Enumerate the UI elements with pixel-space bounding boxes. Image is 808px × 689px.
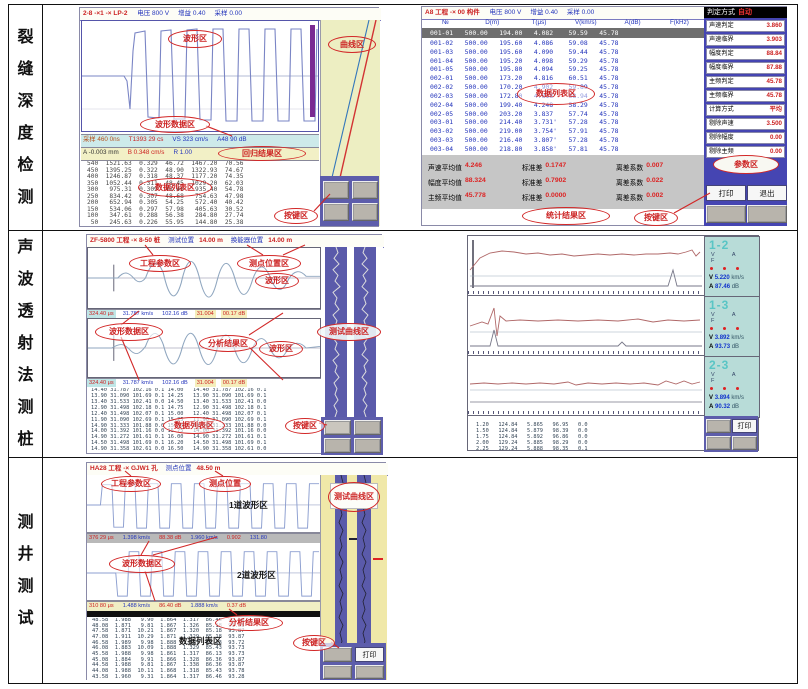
probe-position-label: 换能器位置 xyxy=(231,237,264,244)
profile-info-2: 1-3 V A F V 3.892 km/s A 93.73 dB xyxy=(704,296,760,358)
kv-item: 声速临界3.903 xyxy=(706,34,785,46)
button-panel: 打印 xyxy=(704,416,758,452)
list-item: 002-05 500.00 203.20 3.837 57.74 45.78 xyxy=(430,110,712,119)
list-item: 31.004 xyxy=(195,310,216,318)
list-item: 2.25 129.24 5.888 98.35 0.1 xyxy=(476,446,701,450)
vaf-labels: V A F xyxy=(705,252,759,264)
row-label-cell: 裂缝深度检测 xyxy=(9,5,43,230)
list-item: T1393 29 cs xyxy=(127,135,166,145)
list-item: 88.38 dB xyxy=(157,534,183,543)
status-dots xyxy=(705,386,759,392)
button-blank[interactable] xyxy=(747,205,787,223)
annotation-regression-result-area: 回归结果区 xyxy=(218,146,306,161)
list-item: 1.888 km/s xyxy=(188,602,219,611)
annotation-keys-area: 按键区 xyxy=(293,635,335,651)
annotation-keys-area: 按键区 xyxy=(285,418,325,434)
profile-id: 2-3 xyxy=(705,357,759,372)
list-item: 电压 800 V xyxy=(135,8,171,19)
list-item: 001-04 500.00 195.20 4.098 59.29 45.78 xyxy=(430,57,712,66)
kv-item: 离差系数0.007 xyxy=(616,162,710,172)
result-table: 1.20 124.84 5.865 96.95 0.01.50 124.84 5… xyxy=(476,422,701,450)
row-content-crack: 2-8 -×1 -× LP-2 电压 800 V增益 0.40采样 0.00 采… xyxy=(43,5,797,230)
list-item: F(kHz) xyxy=(656,19,703,26)
status-dot xyxy=(736,267,739,270)
list-item: № xyxy=(422,19,469,26)
annotation-point-position-area: 测点位置区 xyxy=(237,255,301,272)
list-item: 003-04 500.00 218.80 3.858' 57.81 45.78 xyxy=(430,145,712,154)
list-item: 电压 800 V xyxy=(488,7,524,18)
waveform-data-bar: 采样 460 0nsT1393 29 csVS 323 cm/sA48 90 d… xyxy=(81,134,319,148)
print-button[interactable]: 打印 xyxy=(706,185,746,201)
kv-item: 幅度判定88.84 xyxy=(706,48,785,60)
annotation-test-curve-area: 测试曲线区 xyxy=(317,323,381,341)
button-blank[interactable] xyxy=(354,420,381,435)
kv-item: 离差系数0.002 xyxy=(616,192,710,202)
square-waveform-chart xyxy=(87,543,320,601)
project-title: A8 工程 -× 00 构件 xyxy=(425,9,480,16)
button-blank[interactable] xyxy=(354,438,381,453)
list-item: 001-05 500.00 195.80 4.094 59.25 45.78 xyxy=(430,65,712,74)
list-item: B 0.348 cm/s xyxy=(126,148,167,158)
list-item: A(dB) xyxy=(609,19,656,26)
list-item: VS 323 cm/s xyxy=(170,135,210,145)
annotation-waveform-data-area: 波形数据区 xyxy=(95,323,163,341)
profile-panel-3 xyxy=(468,356,704,416)
list-item: 31.787 km/s xyxy=(121,310,155,318)
button-blank[interactable] xyxy=(324,420,351,435)
amplitude-value: A 93.73 dB xyxy=(705,344,759,350)
vaf-labels: V A F xyxy=(705,372,759,384)
profile-trace-2 xyxy=(468,296,702,352)
list-item: 003-02 500.00 219.00 3.754' 57.91 45.78 xyxy=(430,127,712,136)
list-item: 002-01 500.00 173.20 4.816 60.51 45.78 xyxy=(430,74,712,83)
list-item: 324.40 μs xyxy=(87,379,116,387)
row-label-cell: 声波透射法测桩 xyxy=(9,231,43,457)
row-label-crack-depth: 裂缝深度检测 xyxy=(16,22,34,214)
annotation-keys-area: 按键区 xyxy=(274,208,318,224)
profile-id: 1-2 xyxy=(705,237,759,252)
list-item: 增益 0.40 xyxy=(176,8,207,19)
table-row-selected[interactable]: 001-01 500.00 194.00 4.082 59.59 45.78 xyxy=(422,28,712,38)
button-blank[interactable] xyxy=(324,438,351,453)
velocity-value: V 5.220 km/s xyxy=(705,275,759,281)
amplitude-value: A 90.32 dB xyxy=(705,404,759,410)
profile-panel-2 xyxy=(468,296,704,356)
parameter-list: 声速判定3.860声速临界3.903幅度判定88.84幅度临界87.88主频判定… xyxy=(704,20,787,158)
kv-item: 标准差0.1747 xyxy=(522,162,616,172)
project-title: ZF-5800 工程 -× 8-50 桩 xyxy=(90,237,160,244)
table-row: 声波透射法测桩 ZF-5800 工程 -× 8-50 桩 测试位置14.00 m… xyxy=(9,231,797,458)
manual-page: 裂缝深度检测 2-8 -×1 -× LP-2 电压 800 V增益 0.40采样… xyxy=(0,0,808,689)
kv-item: 计算方式平均 xyxy=(706,104,785,116)
title-values: 电压 800 V增益 0.40采样 0.00 xyxy=(488,7,602,18)
annotation-point-position: 测点位置 xyxy=(199,476,251,492)
row-label-pile-testing: 声波透射法测桩 xyxy=(16,232,34,456)
status-dots xyxy=(705,266,759,272)
kv-item: 幅度临界87.88 xyxy=(706,62,785,74)
vaf-labels: V A F xyxy=(705,312,759,324)
table-row: 测井测试 HA28 工程 -× GJW1 孔 测点位置48.50 m 376 2… xyxy=(9,458,797,683)
label-data-list-area: 数据列表区 xyxy=(179,635,222,647)
project-title: HA28 工程 -× GJW1 孔 xyxy=(90,465,158,472)
status-dot xyxy=(710,267,713,270)
profile-id: 1-3 xyxy=(705,297,759,312)
kv-item: 主频临界45.78 xyxy=(706,90,785,102)
kv-item: 主频判定45.78 xyxy=(706,76,785,88)
label-channel1-waveform-area: 1道波形区 xyxy=(229,499,268,511)
list-item: 43.58 1.960 9.31 1.864 1.317 86.46 93.28 xyxy=(92,675,325,680)
button-blank[interactable] xyxy=(706,419,731,433)
parameter-sidebar: 判定方式自动 声速判定3.860声速临界3.903幅度判定88.84幅度临界87… xyxy=(704,7,787,226)
depth-ruler xyxy=(468,351,702,354)
button-blank[interactable] xyxy=(323,665,352,679)
kv-item: 声速平均值4.246 xyxy=(428,162,522,172)
row-content-pile: ZF-5800 工程 -× 8-50 桩 测试位置14.00 m 换能器位置14… xyxy=(43,231,797,457)
annotation-waveform-area: 波形区 xyxy=(255,273,299,289)
table-frame: 裂缝深度检测 2-8 -×1 -× LP-2 电压 800 V增益 0.40采样… xyxy=(8,4,798,684)
screen-crack-statistics: A8 工程 -× 00 构件 电压 800 V增益 0.40采样 0.00 №D… xyxy=(421,6,787,226)
screen-pile-main: ZF-5800 工程 -× 8-50 桩 测试位置14.00 m 换能器位置14… xyxy=(86,234,382,454)
list-item: 1.960 km/s xyxy=(188,534,219,543)
list-item: A -0.003 mm xyxy=(81,148,121,158)
table-header: №D(m)T(μs)V(km/s)A(dB)F(kHz) xyxy=(422,19,704,26)
depth-ruler xyxy=(468,291,702,294)
button-blank[interactable] xyxy=(323,203,349,221)
divider-band xyxy=(87,611,320,617)
screen-well-logging: HA28 工程 -× GJW1 孔 测点位置48.50 m 376 29 μs1… xyxy=(86,462,386,680)
annotation-curve-area: 曲线区 xyxy=(328,36,376,53)
title-values: 电压 800 V增益 0.40采样 0.00 xyxy=(135,8,249,19)
kv-item: 主频平均值45.778 xyxy=(428,192,522,202)
project-title: 2-8 -×1 -× LP-2 xyxy=(83,10,127,17)
list-item: 324.40 μs xyxy=(87,310,116,318)
button-blank[interactable] xyxy=(706,436,731,450)
list-item: 102.16 dB xyxy=(160,379,190,387)
print-button[interactable]: 打印 xyxy=(732,419,757,433)
kv-item: 声速判定3.860 xyxy=(706,20,785,32)
status-dots xyxy=(705,326,759,332)
annotation-waveform-data-area: 波形数据区 xyxy=(109,555,175,573)
list-item: 00.17 dB xyxy=(221,310,247,318)
annotation-statistics-area: 统计结果区 xyxy=(522,207,610,225)
list-item: 376 29 μs xyxy=(87,534,116,543)
annotation-test-curve-area: 测试曲线区 xyxy=(328,482,380,512)
velocity-value: V 3.892 km/s xyxy=(705,335,759,341)
judge-mode-label: 判定方式 xyxy=(707,9,735,16)
list-item: 采样 0.00 xyxy=(565,7,596,18)
screen-crack-main: 2-8 -×1 -× LP-2 电压 800 V增益 0.40采样 0.00 采… xyxy=(79,7,379,227)
list-item: 0.37 dB xyxy=(225,602,248,611)
list-item: 1.488 km/s xyxy=(121,602,152,611)
kv-item: 标准差0.7902 xyxy=(522,177,616,187)
status-dot xyxy=(710,327,713,330)
button-blank[interactable] xyxy=(323,647,352,662)
list-item: V(km/s) xyxy=(562,19,609,26)
list-item: 采样 460 0ns xyxy=(81,135,122,145)
list-item: 001-03 500.00 195.60 4.090 59.44 45.78 xyxy=(430,48,712,57)
button-blank[interactable] xyxy=(706,205,746,223)
channel2-waveform-area xyxy=(87,543,320,601)
list-item: 采样 0.00 xyxy=(213,8,244,19)
list-item: 001-02 500.00 195.60 4.086 59.08 45.78 xyxy=(430,39,712,48)
list-item: 003-03 500.00 216.40 3.807' 57.28 45.78 xyxy=(430,136,712,145)
status-dot xyxy=(723,267,726,270)
button-blank[interactable] xyxy=(732,436,757,450)
button-blank[interactable] xyxy=(352,181,378,199)
list-item: 131.80 xyxy=(248,534,269,543)
kv-item: 剔除声速3.500 xyxy=(706,118,785,130)
scrollbar[interactable] xyxy=(310,25,315,117)
status-dot xyxy=(710,387,713,390)
button-blank[interactable] xyxy=(323,181,349,199)
list-item: 003-01 500.00 214.40 3.731' 57.28 45.78 xyxy=(430,118,712,127)
list-item: 31.004 xyxy=(195,379,216,387)
list-item: T(μs) xyxy=(516,19,563,26)
annotation-waveform-area: 波形区 xyxy=(259,341,303,357)
profile-panel-1 xyxy=(468,236,704,296)
button-panel xyxy=(320,176,379,226)
kv-item: 剔除幅度0.00 xyxy=(706,132,785,144)
annotation-waveform-data-area: 波形数据区 xyxy=(140,116,210,133)
label-channel2-waveform-area: 2道波形区 xyxy=(237,569,276,581)
list-item: 86.40 dB xyxy=(157,602,183,611)
button-blank[interactable] xyxy=(352,203,378,221)
list-item: A48 90 dB xyxy=(215,135,248,145)
test-position-value: 14.00 m xyxy=(199,237,223,244)
row-content-well: HA28 工程 -× GJW1 孔 测点位置48.50 m 376 29 μs1… xyxy=(43,458,797,683)
annotation-project-params-area: 工程参数区 xyxy=(101,476,161,492)
kv-item: 幅度平均值88.324 xyxy=(428,177,522,187)
list-item: 0.902 xyxy=(225,534,243,543)
point-position-label: 测点位置 xyxy=(166,465,192,472)
annotation-analysis-result-area: 分析结果区 xyxy=(199,335,257,352)
list-item: 310 80 μs xyxy=(87,602,116,611)
status-dot xyxy=(723,327,726,330)
row-label-cell: 测井测试 xyxy=(9,458,43,683)
print-button[interactable]: 打印 xyxy=(355,647,384,662)
test-position-label: 测试位置 xyxy=(168,237,194,244)
annotation-parameter-area: 参数区 xyxy=(713,155,779,174)
judge-mode-header: 判定方式自动 xyxy=(704,7,787,18)
depth-ruler xyxy=(468,411,702,414)
list-item: 102.16 dB xyxy=(160,310,190,318)
annotation-data-list-area: 数据列表区 xyxy=(517,83,595,105)
probe-position-value: 14.00 m xyxy=(268,237,292,244)
list-item: 14.90 31.358 102.61 0.0 16.50 14.90 31.3… xyxy=(91,447,325,453)
kv-item: 标准差0.0000 xyxy=(522,192,616,202)
amplitude-value: A 87.46 dB xyxy=(705,284,759,290)
judge-mode-value: 自动 xyxy=(738,9,752,16)
annotation-project-params-area: 工程参数区 xyxy=(129,255,191,272)
list-item: D(m) xyxy=(469,19,516,26)
profile-trace-3 xyxy=(468,356,702,412)
exit-button[interactable]: 退出 xyxy=(747,185,787,201)
annotation-waveform-area: 波形区 xyxy=(168,30,222,48)
list-item: 增益 0.40 xyxy=(528,7,559,18)
button-panel xyxy=(321,417,383,455)
annotation-data-list-area: 数据列表区 xyxy=(138,178,212,197)
velocity-value: V 3.894 km/s xyxy=(705,395,759,401)
list-item: R 1.00 xyxy=(171,148,194,158)
annotation-analysis-result-area: 分析结果区 xyxy=(215,615,283,631)
status-dot xyxy=(723,387,726,390)
status-dot xyxy=(736,327,739,330)
list-item: 1.398 km/s xyxy=(121,534,152,543)
profile-info-3: 2-3 V A F V 3.894 km/s A 90.32 dB xyxy=(704,356,760,418)
list-item: 31.787 km/s xyxy=(121,379,155,387)
button-panel: 打印 xyxy=(320,643,386,680)
statistics-area: 声速平均值4.246标准差0.1747离差系数0.007幅度平均值88.324标… xyxy=(422,155,716,209)
table-row: 裂缝深度检测 2-8 -×1 -× LP-2 电压 800 V增益 0.40采样… xyxy=(9,5,797,231)
profile-trace-1 xyxy=(468,236,702,292)
test-curve-label-box: 测试曲线区 xyxy=(330,483,378,509)
profile-info-1: 1-2 V A F V 5.220 km/s A 87.46 dB xyxy=(704,236,760,298)
annotation-keys-area: 按键区 xyxy=(634,210,678,226)
screen-pile-profiles: 1-2 V A F V 5.220 km/s A 87.46 dB xyxy=(467,235,759,451)
kv-item: 离差系数0.022 xyxy=(616,177,710,187)
annotation-data-list-area: 数据列表区 xyxy=(163,417,225,434)
list-item: 00.17 dB xyxy=(221,379,247,387)
data-list: 48.58 1.988 9.90 1.864 1.317 86.46 93.58… xyxy=(87,618,325,680)
button-blank[interactable] xyxy=(355,665,384,679)
status-dot xyxy=(736,387,739,390)
point-position-value: 48.50 m xyxy=(197,465,221,472)
row-label-well-logging: 测井测试 xyxy=(16,507,34,635)
